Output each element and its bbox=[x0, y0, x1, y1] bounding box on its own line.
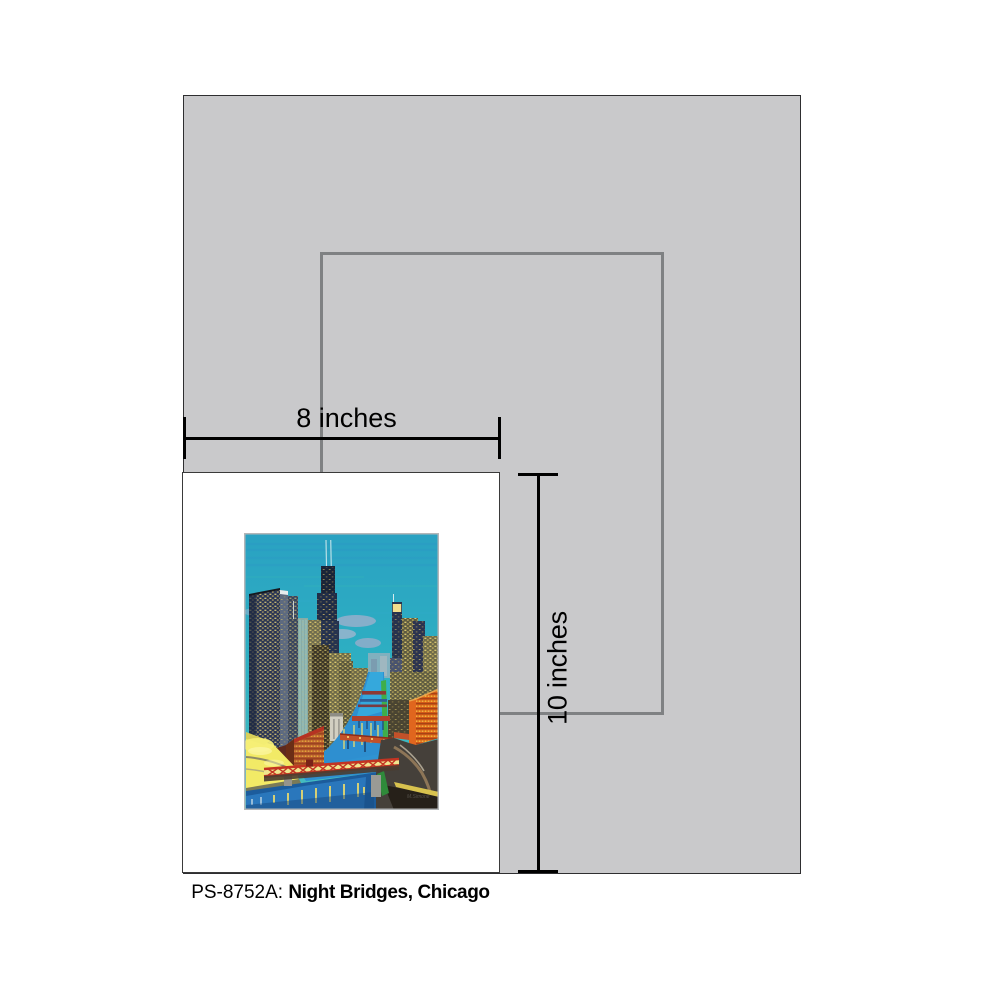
svg-text:M.Simone: M.Simone bbox=[407, 794, 430, 800]
